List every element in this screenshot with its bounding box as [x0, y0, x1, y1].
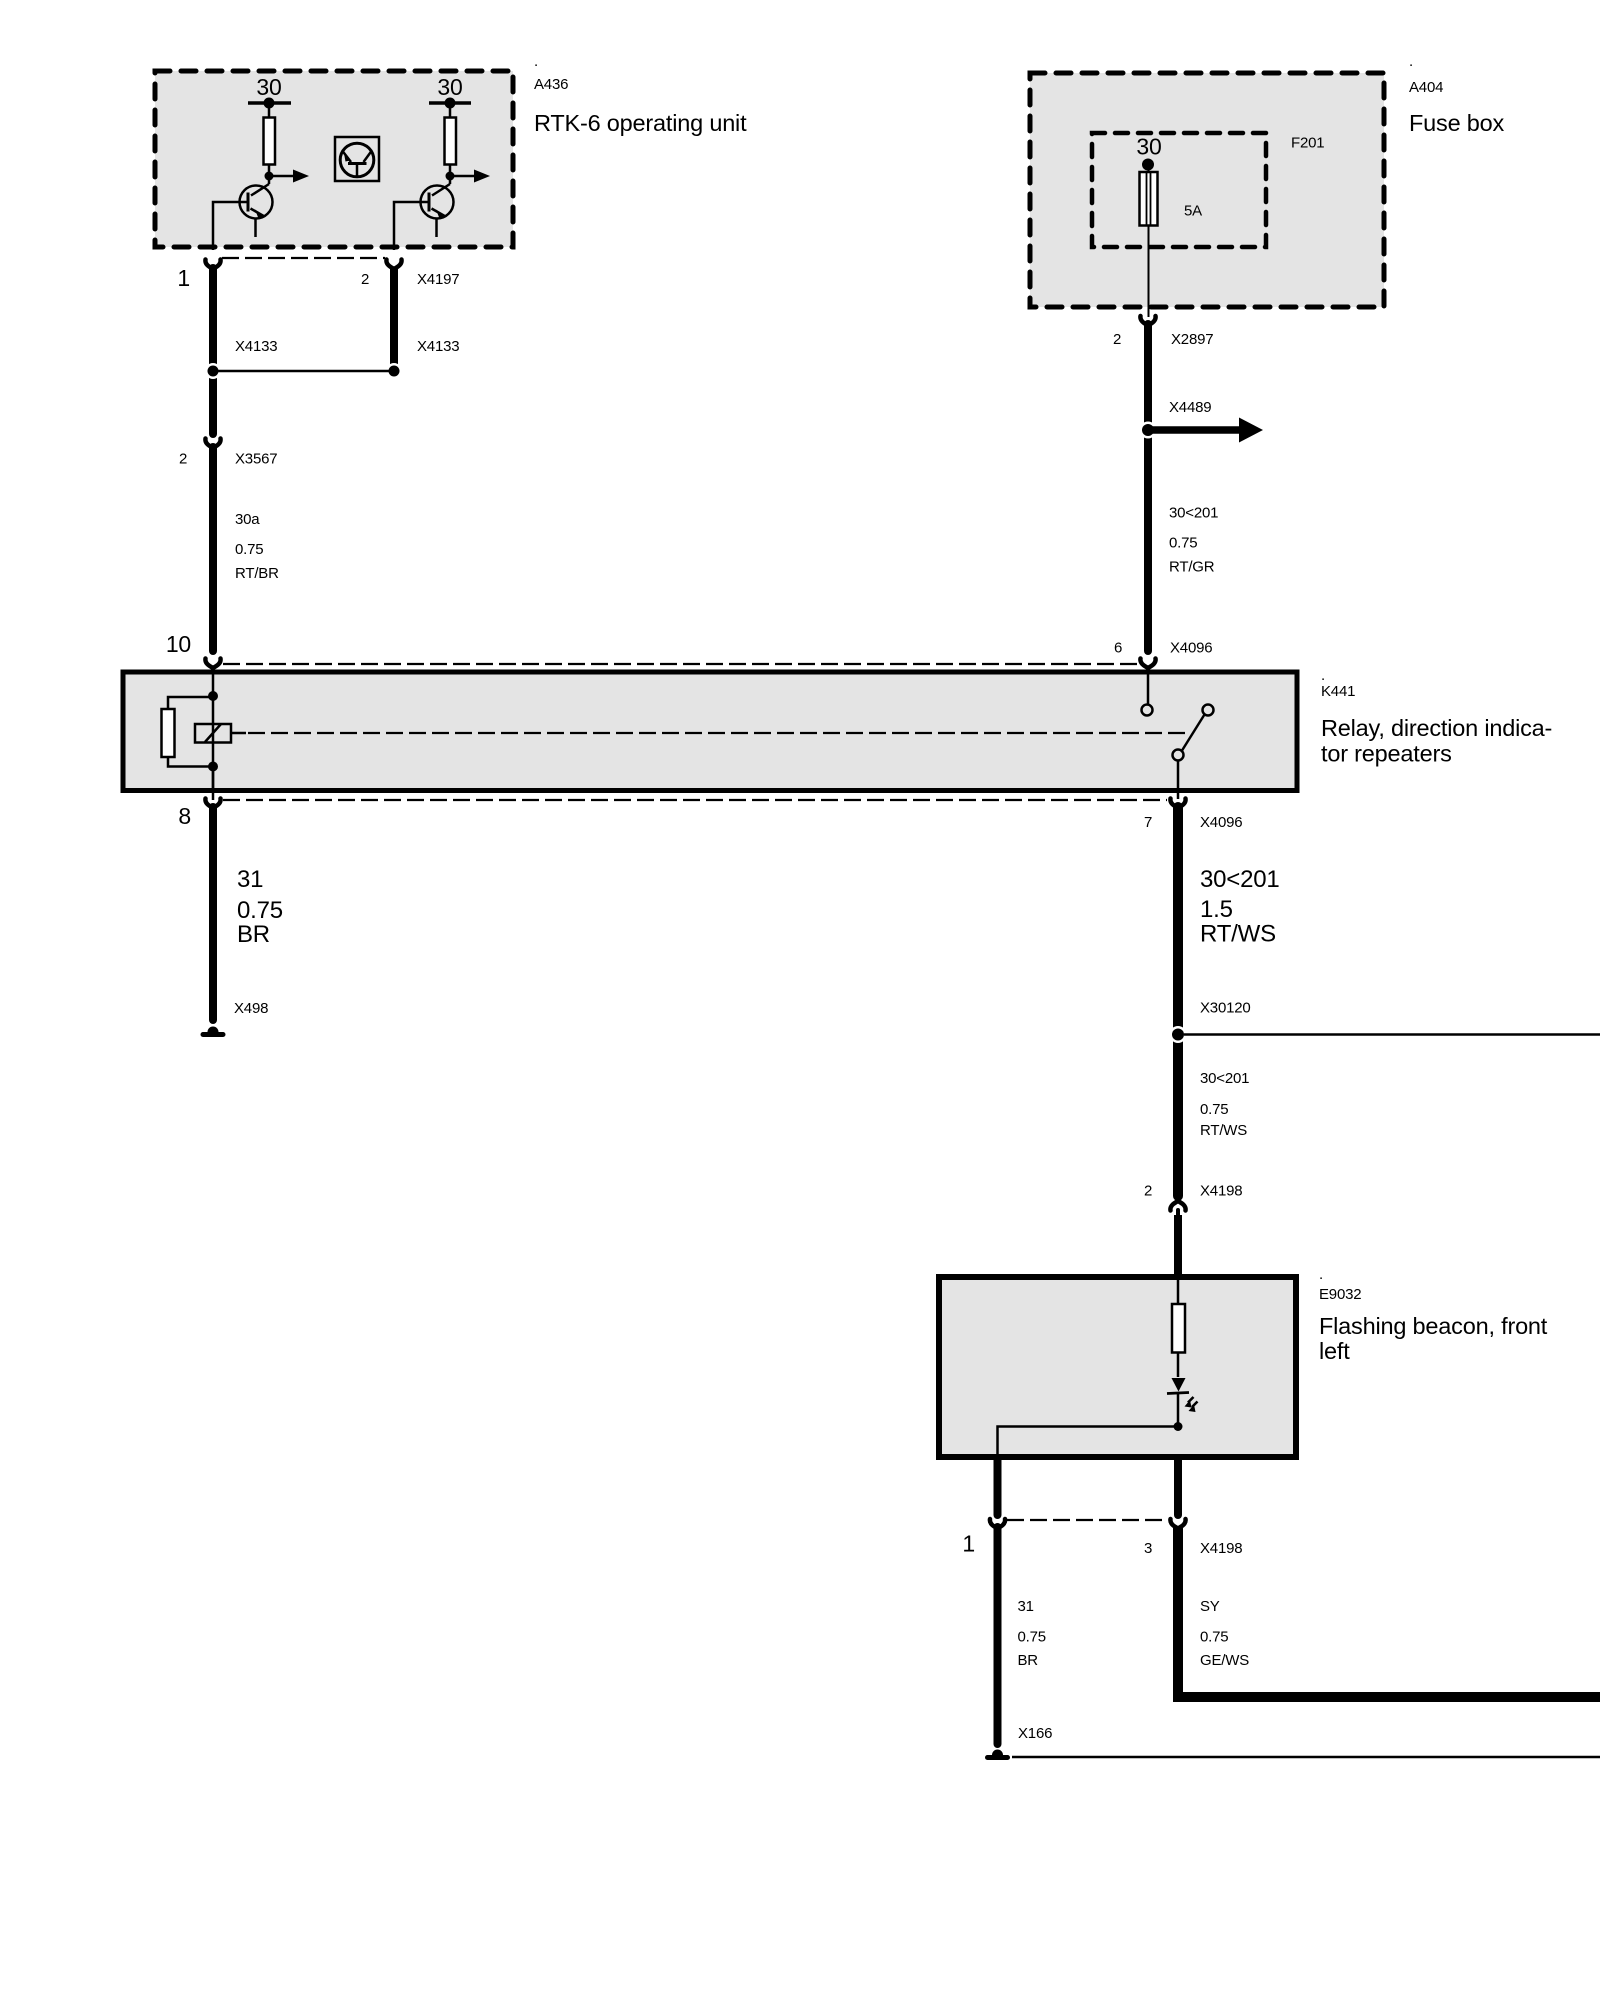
svg-text:X4197: X4197 [417, 271, 459, 288]
svg-text:K441: K441 [1321, 683, 1355, 700]
svg-text:2: 2 [179, 451, 187, 468]
svg-text:E9032: E9032 [1319, 1286, 1361, 1303]
svg-text:0.75: 0.75 [1200, 1101, 1228, 1118]
svg-text:X4133: X4133 [235, 338, 277, 355]
svg-text:1: 1 [962, 1531, 975, 1557]
svg-text:6: 6 [1114, 640, 1122, 657]
svg-text:tor repeaters: tor repeaters [1321, 741, 1452, 767]
svg-text:31: 31 [1018, 1598, 1034, 1615]
svg-text:30: 30 [256, 74, 281, 100]
svg-text:31: 31 [237, 866, 263, 893]
svg-text:0.75: 0.75 [237, 897, 283, 924]
svg-text:X4198: X4198 [1200, 1183, 1242, 1200]
svg-text:30: 30 [1136, 134, 1161, 160]
svg-text:RTK-6 operating unit: RTK-6 operating unit [534, 110, 747, 136]
svg-text:2: 2 [1144, 1183, 1152, 1200]
svg-text:0.75: 0.75 [1200, 1629, 1228, 1646]
svg-text:X4489: X4489 [1169, 399, 1211, 416]
svg-text:.: . [1319, 1266, 1323, 1283]
svg-text:A404: A404 [1409, 79, 1443, 96]
svg-text:A436: A436 [534, 76, 568, 93]
svg-text:Fuse box: Fuse box [1409, 110, 1505, 136]
svg-text:X498: X498 [234, 1000, 268, 1017]
svg-text:10: 10 [166, 631, 191, 657]
svg-text:3: 3 [1144, 1540, 1152, 1557]
svg-text:X2897: X2897 [1171, 331, 1213, 348]
svg-text:30a: 30a [235, 511, 260, 528]
svg-text:30: 30 [437, 74, 462, 100]
svg-text:1.5: 1.5 [1200, 896, 1233, 923]
svg-text:1: 1 [177, 265, 190, 291]
svg-text:2: 2 [361, 271, 369, 288]
svg-text:.: . [1321, 667, 1325, 684]
svg-text:0.75: 0.75 [1169, 535, 1197, 552]
svg-text:X4198: X4198 [1200, 1540, 1242, 1557]
svg-text:X4096: X4096 [1200, 814, 1242, 831]
svg-text:left: left [1319, 1338, 1350, 1364]
svg-text:X3567: X3567 [235, 451, 277, 468]
svg-text:2: 2 [1113, 331, 1121, 348]
svg-text:0.75: 0.75 [235, 541, 263, 558]
svg-text:8: 8 [178, 803, 191, 829]
svg-text:F201: F201 [1291, 135, 1324, 152]
svg-text:7: 7 [1144, 814, 1152, 831]
svg-text:Relay, direction indica-: Relay, direction indica- [1321, 715, 1552, 741]
svg-text:X4096: X4096 [1170, 640, 1212, 657]
svg-text:30<201: 30<201 [1169, 505, 1218, 522]
svg-text:30<201: 30<201 [1200, 866, 1280, 893]
svg-text:.: . [1409, 53, 1413, 70]
svg-text:BR: BR [1018, 1652, 1039, 1669]
svg-text:RT/WS: RT/WS [1200, 921, 1276, 948]
svg-text:30<201: 30<201 [1200, 1070, 1249, 1087]
svg-text:X166: X166 [1018, 1725, 1052, 1742]
svg-text:RT/GR: RT/GR [1169, 559, 1215, 576]
svg-text:RT/WS: RT/WS [1200, 1122, 1247, 1139]
svg-text:0.75: 0.75 [1018, 1629, 1046, 1646]
svg-text:.: . [534, 53, 538, 70]
svg-text:Flashing beacon, front: Flashing beacon, front [1319, 1313, 1548, 1339]
svg-text:X30120: X30120 [1200, 1000, 1251, 1017]
svg-text:RT/BR: RT/BR [235, 565, 279, 582]
svg-text:GE/WS: GE/WS [1200, 1652, 1249, 1669]
svg-text:SY: SY [1200, 1598, 1220, 1615]
svg-text:X4133: X4133 [417, 338, 459, 355]
svg-text:5A: 5A [1184, 203, 1202, 220]
svg-text:BR: BR [237, 921, 270, 948]
